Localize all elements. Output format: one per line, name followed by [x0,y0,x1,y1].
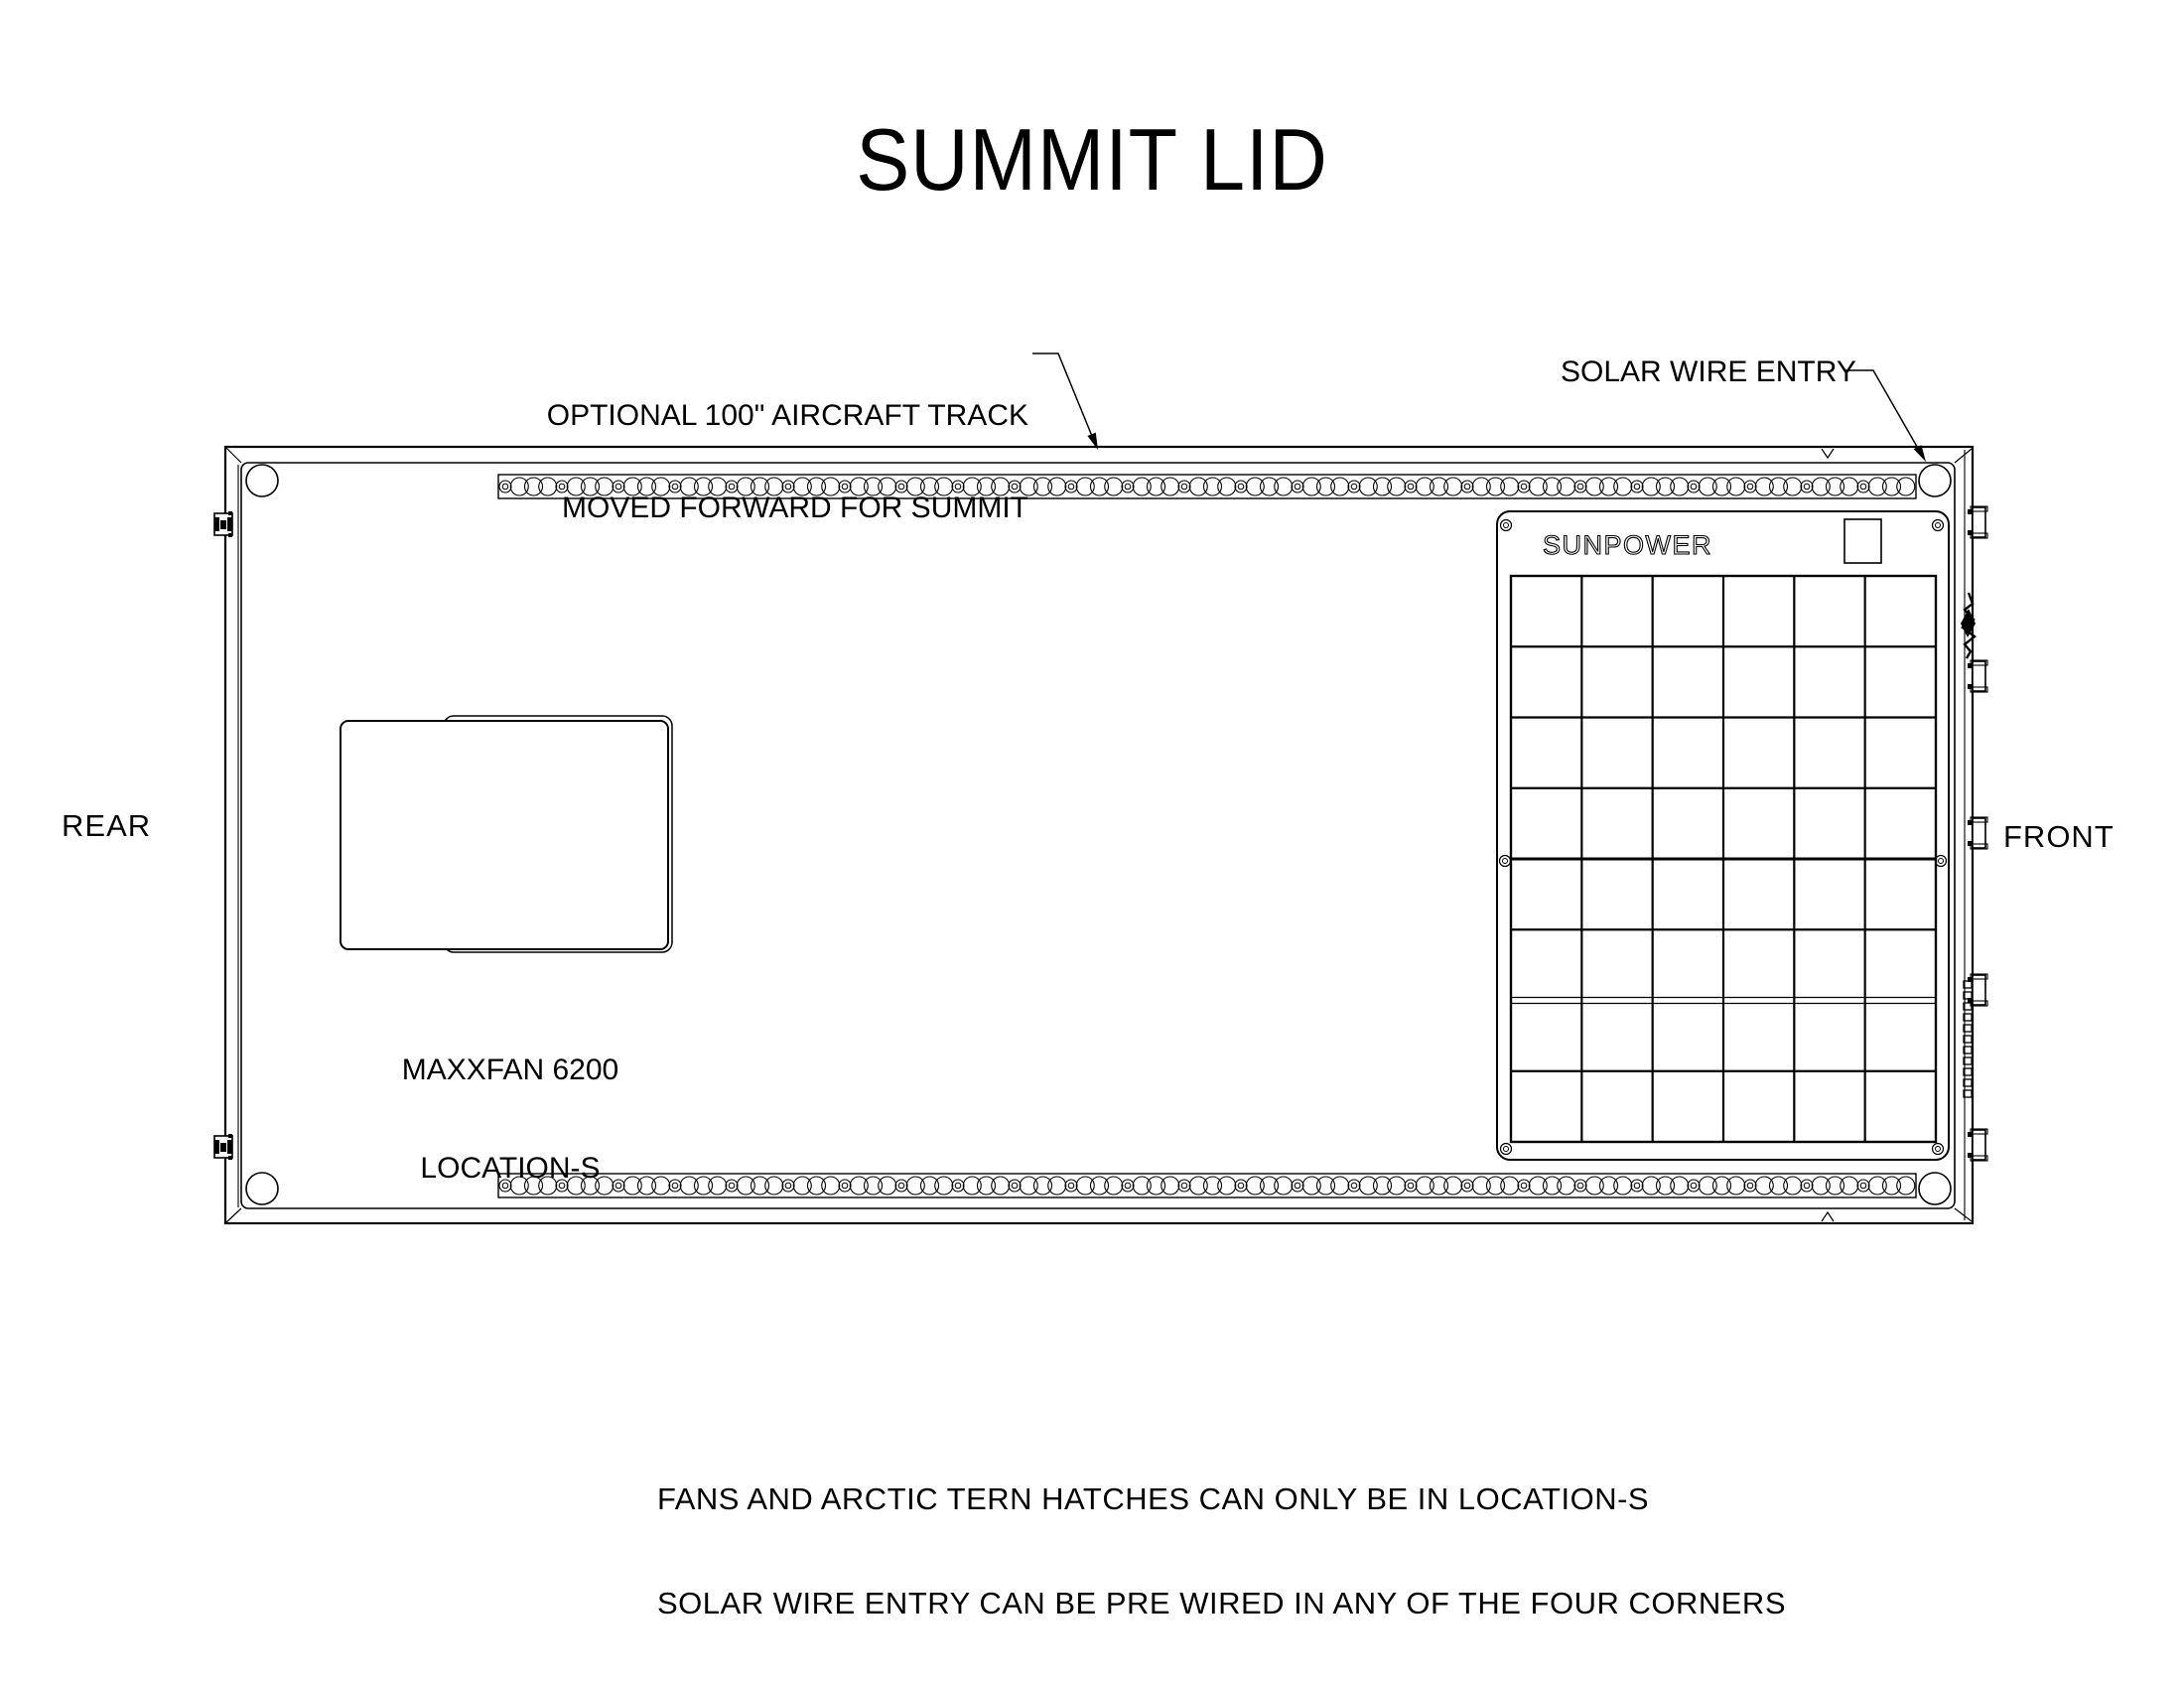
fan-label-line2: LOCATION-S [361,1152,659,1185]
panel-screw-center [1504,1147,1509,1152]
solar-wire-entry-callout: SOLAR WIRE ENTRY [1561,355,1856,389]
page-title: SUMMIT LID [87,109,2097,211]
bottom-edge-tick [1822,1212,1834,1221]
track-hole [1529,478,1547,495]
track-hole [709,1177,727,1195]
panel-screw [1500,856,1511,867]
track-fastener-center [1238,1183,1244,1189]
track-hole [1444,1177,1462,1195]
track-hole [1727,1177,1745,1195]
track-hole [1487,478,1505,495]
track-fastener-center [955,1183,961,1189]
track-hole [1784,478,1802,495]
track-hole [1261,1177,1279,1195]
hinge-pin [220,1143,226,1152]
track-fastener [1631,1180,1643,1192]
track-hole [1600,478,1618,495]
track-hole [1275,1177,1293,1195]
track-fastener [1292,1180,1303,1192]
latch-nub [1968,684,1972,689]
hinge-tab [228,1134,232,1138]
track-hole [1841,1177,1858,1195]
track-fastener [1348,481,1360,492]
track-hole [1614,1177,1632,1195]
track-hole [865,1177,883,1195]
track-fastener-center [1747,1183,1753,1189]
track-fastener-center [1634,1183,1640,1189]
hinge-leaf [227,1140,232,1154]
track-hole [1204,1177,1222,1195]
track-fastener [1292,481,1303,492]
bevel-top-right [1955,449,1972,463]
track-hole [1034,1177,1052,1195]
track-fastener [1744,481,1756,492]
aircraft-track-callout-line2: MOVED FORWARD FOR SUMMIT [532,492,1028,523]
track-fastener [952,1180,964,1192]
latch-nub [1968,841,1972,846]
corner-hole-3 [1919,1173,1951,1204]
track-hole [822,1177,840,1195]
fan-lid-outline [341,721,668,949]
junction-box [1844,519,1881,563]
track-fastener-center [1068,484,1074,490]
hinge-tab [228,533,232,537]
track-fastener [1688,481,1700,492]
track-hole [921,1177,939,1195]
track-hole [1161,1177,1179,1195]
fan-cutout [341,716,672,952]
track-hole [1827,1177,1844,1195]
track-fastener [1065,481,1077,492]
track-fastener-center [842,1183,848,1189]
track-fastener [782,1180,794,1192]
panel-screw-center [1936,523,1941,528]
track-fastener-center [502,484,508,490]
track-hole [1713,1177,1731,1195]
track-hole [1642,478,1660,495]
track-hole [1218,478,1236,495]
track-fastener-center [1747,484,1753,490]
rear-label: REAR [62,808,151,844]
latch-nub [1968,820,1972,825]
hinge-tab [228,1156,232,1160]
track-fastener [1801,481,1813,492]
track-hole [963,1177,981,1195]
track-fastener [1348,1180,1360,1192]
fan-label-line1: MAXXFAN 6200 [361,1054,659,1086]
track-hole [1671,1177,1689,1195]
track-hole [1727,478,1745,495]
track-hole [1671,478,1689,495]
track-fastener [1405,481,1417,492]
track-fastener-center [898,1183,904,1189]
track-hole [1034,478,1052,495]
track-hole [992,1177,1010,1195]
track-hole [1827,478,1844,495]
aircraft-track-callout-line1: OPTIONAL 100" AIRCRAFT TRACK [532,400,1028,431]
hinge-leaf [214,517,219,531]
track-fastener [1461,481,1473,492]
track-hole [935,1177,953,1195]
track-fastener [839,1180,851,1192]
hinge-pin [220,520,226,529]
track-hole [1317,478,1335,495]
track-fastener-center [1860,1183,1866,1189]
track-hole [695,1177,713,1195]
track-hole [850,1177,868,1195]
track-fastener-center [1181,484,1187,490]
front-label: FRONT [2003,819,2115,855]
track-fastener [1857,481,1869,492]
track-fastener-center [1351,484,1357,490]
track-fastener-center [1464,484,1470,490]
track-hole [1388,478,1406,495]
panel-screw-center [1936,1147,1941,1152]
track-fastener [895,1180,907,1192]
track-hole [1501,478,1519,495]
track-fastener [1178,481,1190,492]
track-hole [1189,1177,1207,1195]
track-hole [1359,478,1377,495]
footnote-line2: SOLAR WIRE ENTRY CAN BE PRE WIRED IN ANY… [657,1586,1786,1620]
track-hole [1699,478,1716,495]
track-hole [1302,1177,1320,1195]
track-fastener-center [1125,484,1131,490]
track-hole [1246,478,1264,495]
track-fastener [499,481,511,492]
track-hole [808,1177,826,1195]
bevel-top-left [226,448,241,463]
hinge-tab [228,511,232,515]
track-hole [1076,1177,1094,1195]
track-fastener [1574,1180,1586,1192]
track-fastener [1631,481,1643,492]
track-hole [1841,478,1858,495]
track-hole [1472,1177,1490,1195]
track-hole [1444,478,1462,495]
track-hole [751,1177,769,1195]
track-hole [1585,478,1603,495]
track-fastener-center [1634,484,1640,490]
track-hole [1133,478,1151,495]
track-fastener-center [1804,1183,1810,1189]
track-hole [906,1177,924,1195]
track-hole [1883,1177,1901,1195]
track-fastener-center [1577,1183,1583,1189]
track-fastener-center [1238,484,1244,490]
track-fastener-center [1068,1183,1074,1189]
track-fastener [726,1180,738,1192]
track-hole [1091,478,1109,495]
track-hole [1105,1177,1123,1195]
track-fastener-center [1691,1183,1697,1189]
track-fastener [1178,1180,1190,1192]
track-fastener-center [672,1183,678,1189]
track-hole [1431,1177,1448,1195]
track-hole [1770,1177,1788,1195]
track-fastener-center [1012,1183,1018,1189]
hinge-leaf [214,1140,219,1154]
track-fastener [1235,1180,1247,1192]
track-hole [680,1177,698,1195]
bevel-bottom-left [226,1208,241,1222]
track-hole [1544,1177,1562,1195]
panel-screw-center [1504,523,1509,528]
track-hole [1374,1177,1392,1195]
sunpower-logo: SUNPOWER [1543,530,1712,560]
track-fastener [1405,1180,1417,1192]
track-fastener [1122,481,1134,492]
track-fastener-center [1860,484,1866,490]
panel-screw-center [1503,859,1508,864]
track-hole [978,1177,996,1195]
track-hole [1359,1177,1377,1195]
track-fastener [1744,1180,1756,1192]
panel-screw [1501,520,1512,531]
corner-hole-2 [246,1173,278,1204]
track-fastener-center [1691,484,1697,490]
track-hole [1374,478,1392,495]
footnotes: FANS AND ARCTIC TERN HATCHES CAN ONLY BE… [657,1412,1786,1655]
track-hole [1699,1177,1716,1195]
track-hole [1614,478,1632,495]
track-fastener [1461,1180,1473,1192]
corner-hole-0 [246,465,278,496]
track-fastener [1688,1180,1700,1192]
latch-nub [1968,663,1972,668]
track-fastener-center [1181,1183,1187,1189]
track-hole [765,1177,783,1195]
track-hole [1812,1177,1830,1195]
track-fastener [1801,1180,1813,1192]
track-hole [1544,478,1562,495]
track-fastener-center [785,1183,791,1189]
track-hole [1487,1177,1505,1195]
track-hole [1105,478,1123,495]
fan-label: MAXXFAN 6200 LOCATION-S [361,988,659,1217]
bevel-bottom-right [1955,1208,1972,1221]
track-fastener-center [1577,484,1583,490]
track-fastener-center [1408,484,1414,490]
track-hole [1812,478,1830,495]
track-hole [1431,478,1448,495]
latch-nub [1968,1153,1972,1158]
track-hole [1161,478,1179,495]
track-hole [510,478,528,495]
track-hole [1275,478,1293,495]
track-hole [1148,1177,1165,1195]
track-fastener [1518,481,1530,492]
panel-screw [1933,1144,1944,1155]
track-hole [1189,478,1207,495]
track-hole [1897,478,1915,495]
track-hole [1148,478,1165,495]
track-hole [1133,1177,1151,1195]
track-fastener [1235,481,1247,492]
track-hole [1246,1177,1264,1195]
track-fastener-center [1125,1183,1131,1189]
track-hole [1048,478,1066,495]
track-hole [737,1177,754,1195]
track-hole [1755,478,1773,495]
track-hole [1868,478,1886,495]
track-hole [1501,1177,1519,1195]
track-hole [1558,1177,1575,1195]
corner-hole-1 [1919,465,1951,496]
track-hole [1261,478,1279,495]
track-hole [1048,1177,1066,1195]
track-fastener [669,1180,681,1192]
track-hole [793,1177,811,1195]
footnote-line1: FANS AND ARCTIC TERN HATCHES CAN ONLY BE… [657,1481,1786,1516]
track-fastener [1518,1180,1530,1192]
track-hole [1713,478,1731,495]
track-hole [1529,1177,1547,1195]
track-fastener [1065,1180,1077,1192]
aircraft-track-callout: OPTIONAL 100" AIRCRAFT TRACK MOVED FORWA… [532,339,1028,554]
track-fastener-center [1295,484,1300,490]
panel-screw [1501,1144,1512,1155]
track-hole [1416,1177,1433,1195]
track-hole [1784,1177,1802,1195]
track-hole [1091,1177,1109,1195]
track-fastener-center [1521,484,1527,490]
leader-aircraft-track [1032,353,1096,446]
top-edge-tick [1822,449,1834,458]
latch-nub [1968,1132,1972,1137]
track-hole [1204,478,1222,495]
track-hole [1218,1177,1236,1195]
track-hole [1076,478,1094,495]
track-fastener-center [1464,1183,1470,1189]
track-hole [1600,1177,1618,1195]
track-hole [1558,478,1575,495]
track-hole [879,1177,896,1195]
track-hole [1416,478,1433,495]
track-hole [1657,478,1675,495]
track-hole [1317,1177,1335,1195]
track-fastener-center [1521,1183,1527,1189]
track-hole [1020,1177,1037,1195]
track-hole [1388,1177,1406,1195]
track-hole [1755,1177,1773,1195]
panel-screw-center [1939,859,1944,864]
track-hole [1868,1177,1886,1195]
track-hole [1302,478,1320,495]
track-hole [1770,478,1788,495]
track-hole [1657,1177,1675,1195]
track-hole [1883,478,1901,495]
track-fastener-center [1408,1183,1414,1189]
latch-nub [1968,530,1972,535]
track-hole [1585,1177,1603,1195]
track-fastener [1009,1180,1021,1192]
panel-screw [1933,520,1944,531]
track-fastener-center [1295,1183,1300,1189]
hinge-leaf [227,517,232,531]
track-fastener-center [729,1183,735,1189]
track-fastener-center [1351,1183,1357,1189]
track-hole [1897,1177,1915,1195]
track-fastener [1574,481,1586,492]
track-hole [1642,1177,1660,1195]
track-fastener [1122,1180,1134,1192]
track-hole [1331,478,1349,495]
track-fastener-center [1804,484,1810,490]
track-hole [1331,1177,1349,1195]
track-hole [1472,478,1490,495]
latch-nub [1968,509,1972,514]
track-fastener [1857,1180,1869,1192]
